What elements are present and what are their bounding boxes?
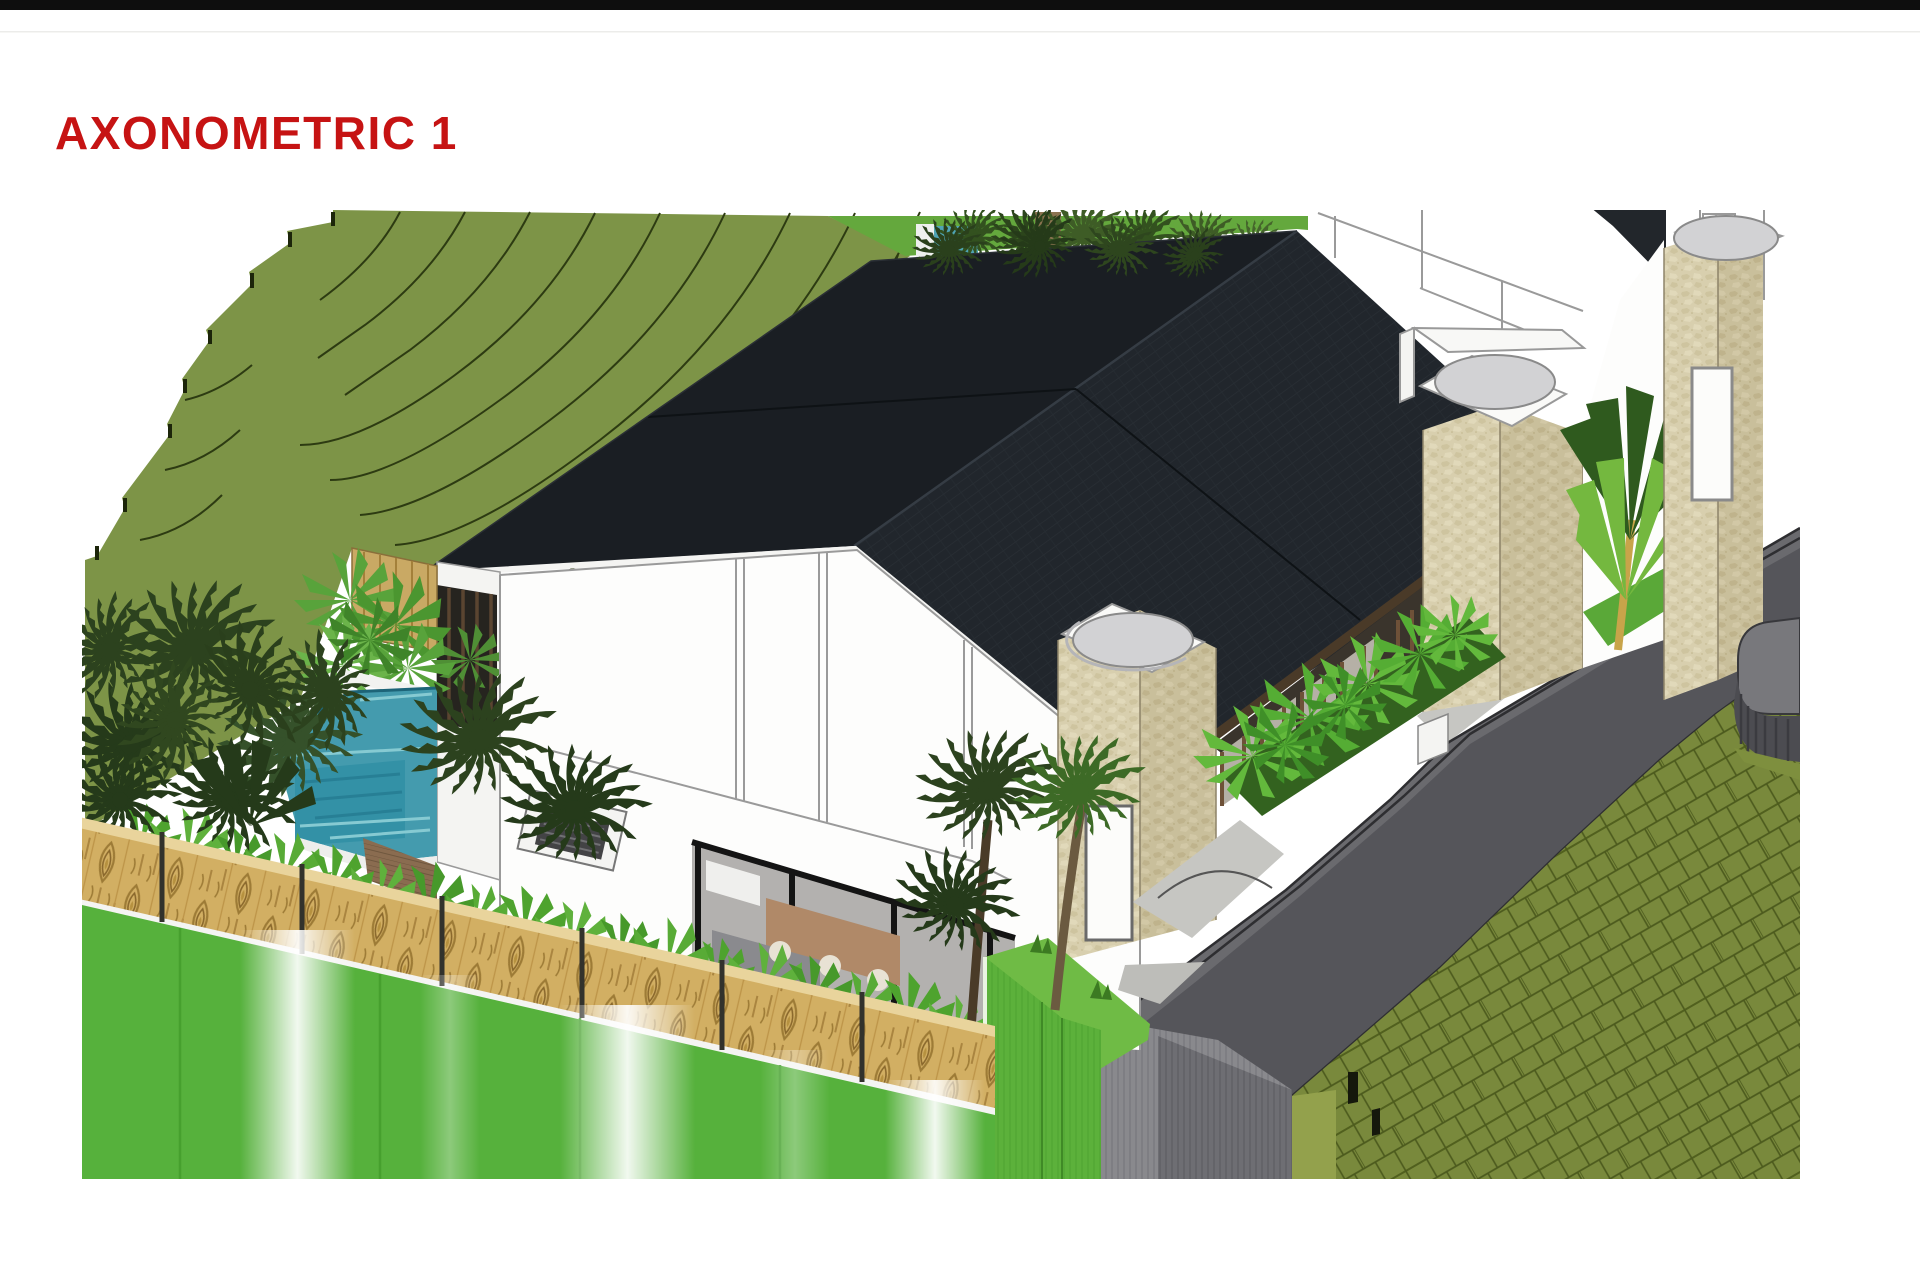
svg-text:AXONOMETRIC 1: AXONOMETRIC 1 [55, 107, 458, 159]
